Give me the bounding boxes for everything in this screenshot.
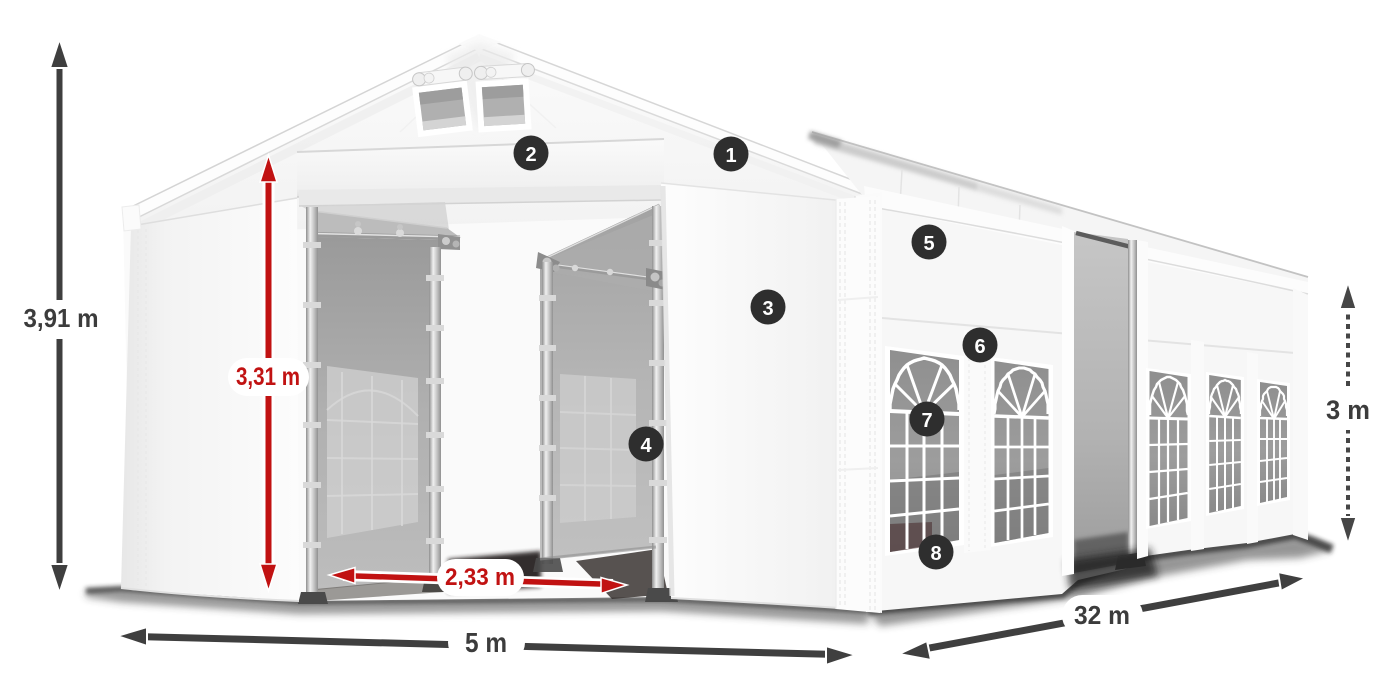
svg-text:5: 5: [923, 233, 934, 255]
svg-text:2,33 m: 2,33 m: [445, 564, 515, 591]
svg-text:3,31 m: 3,31 m: [236, 363, 300, 391]
svg-text:1: 1: [725, 145, 736, 167]
svg-text:4: 4: [640, 435, 652, 457]
svg-text:3 m: 3 m: [1326, 395, 1370, 425]
svg-text:3: 3: [762, 298, 773, 320]
svg-text:8: 8: [930, 543, 941, 565]
svg-text:5 m: 5 m: [465, 627, 507, 658]
svg-text:32 m: 32 m: [1074, 600, 1130, 630]
svg-text:2: 2: [525, 144, 536, 166]
svg-text:3,91 m: 3,91 m: [24, 303, 99, 333]
svg-text:6: 6: [974, 336, 985, 358]
svg-text:7: 7: [921, 410, 932, 432]
